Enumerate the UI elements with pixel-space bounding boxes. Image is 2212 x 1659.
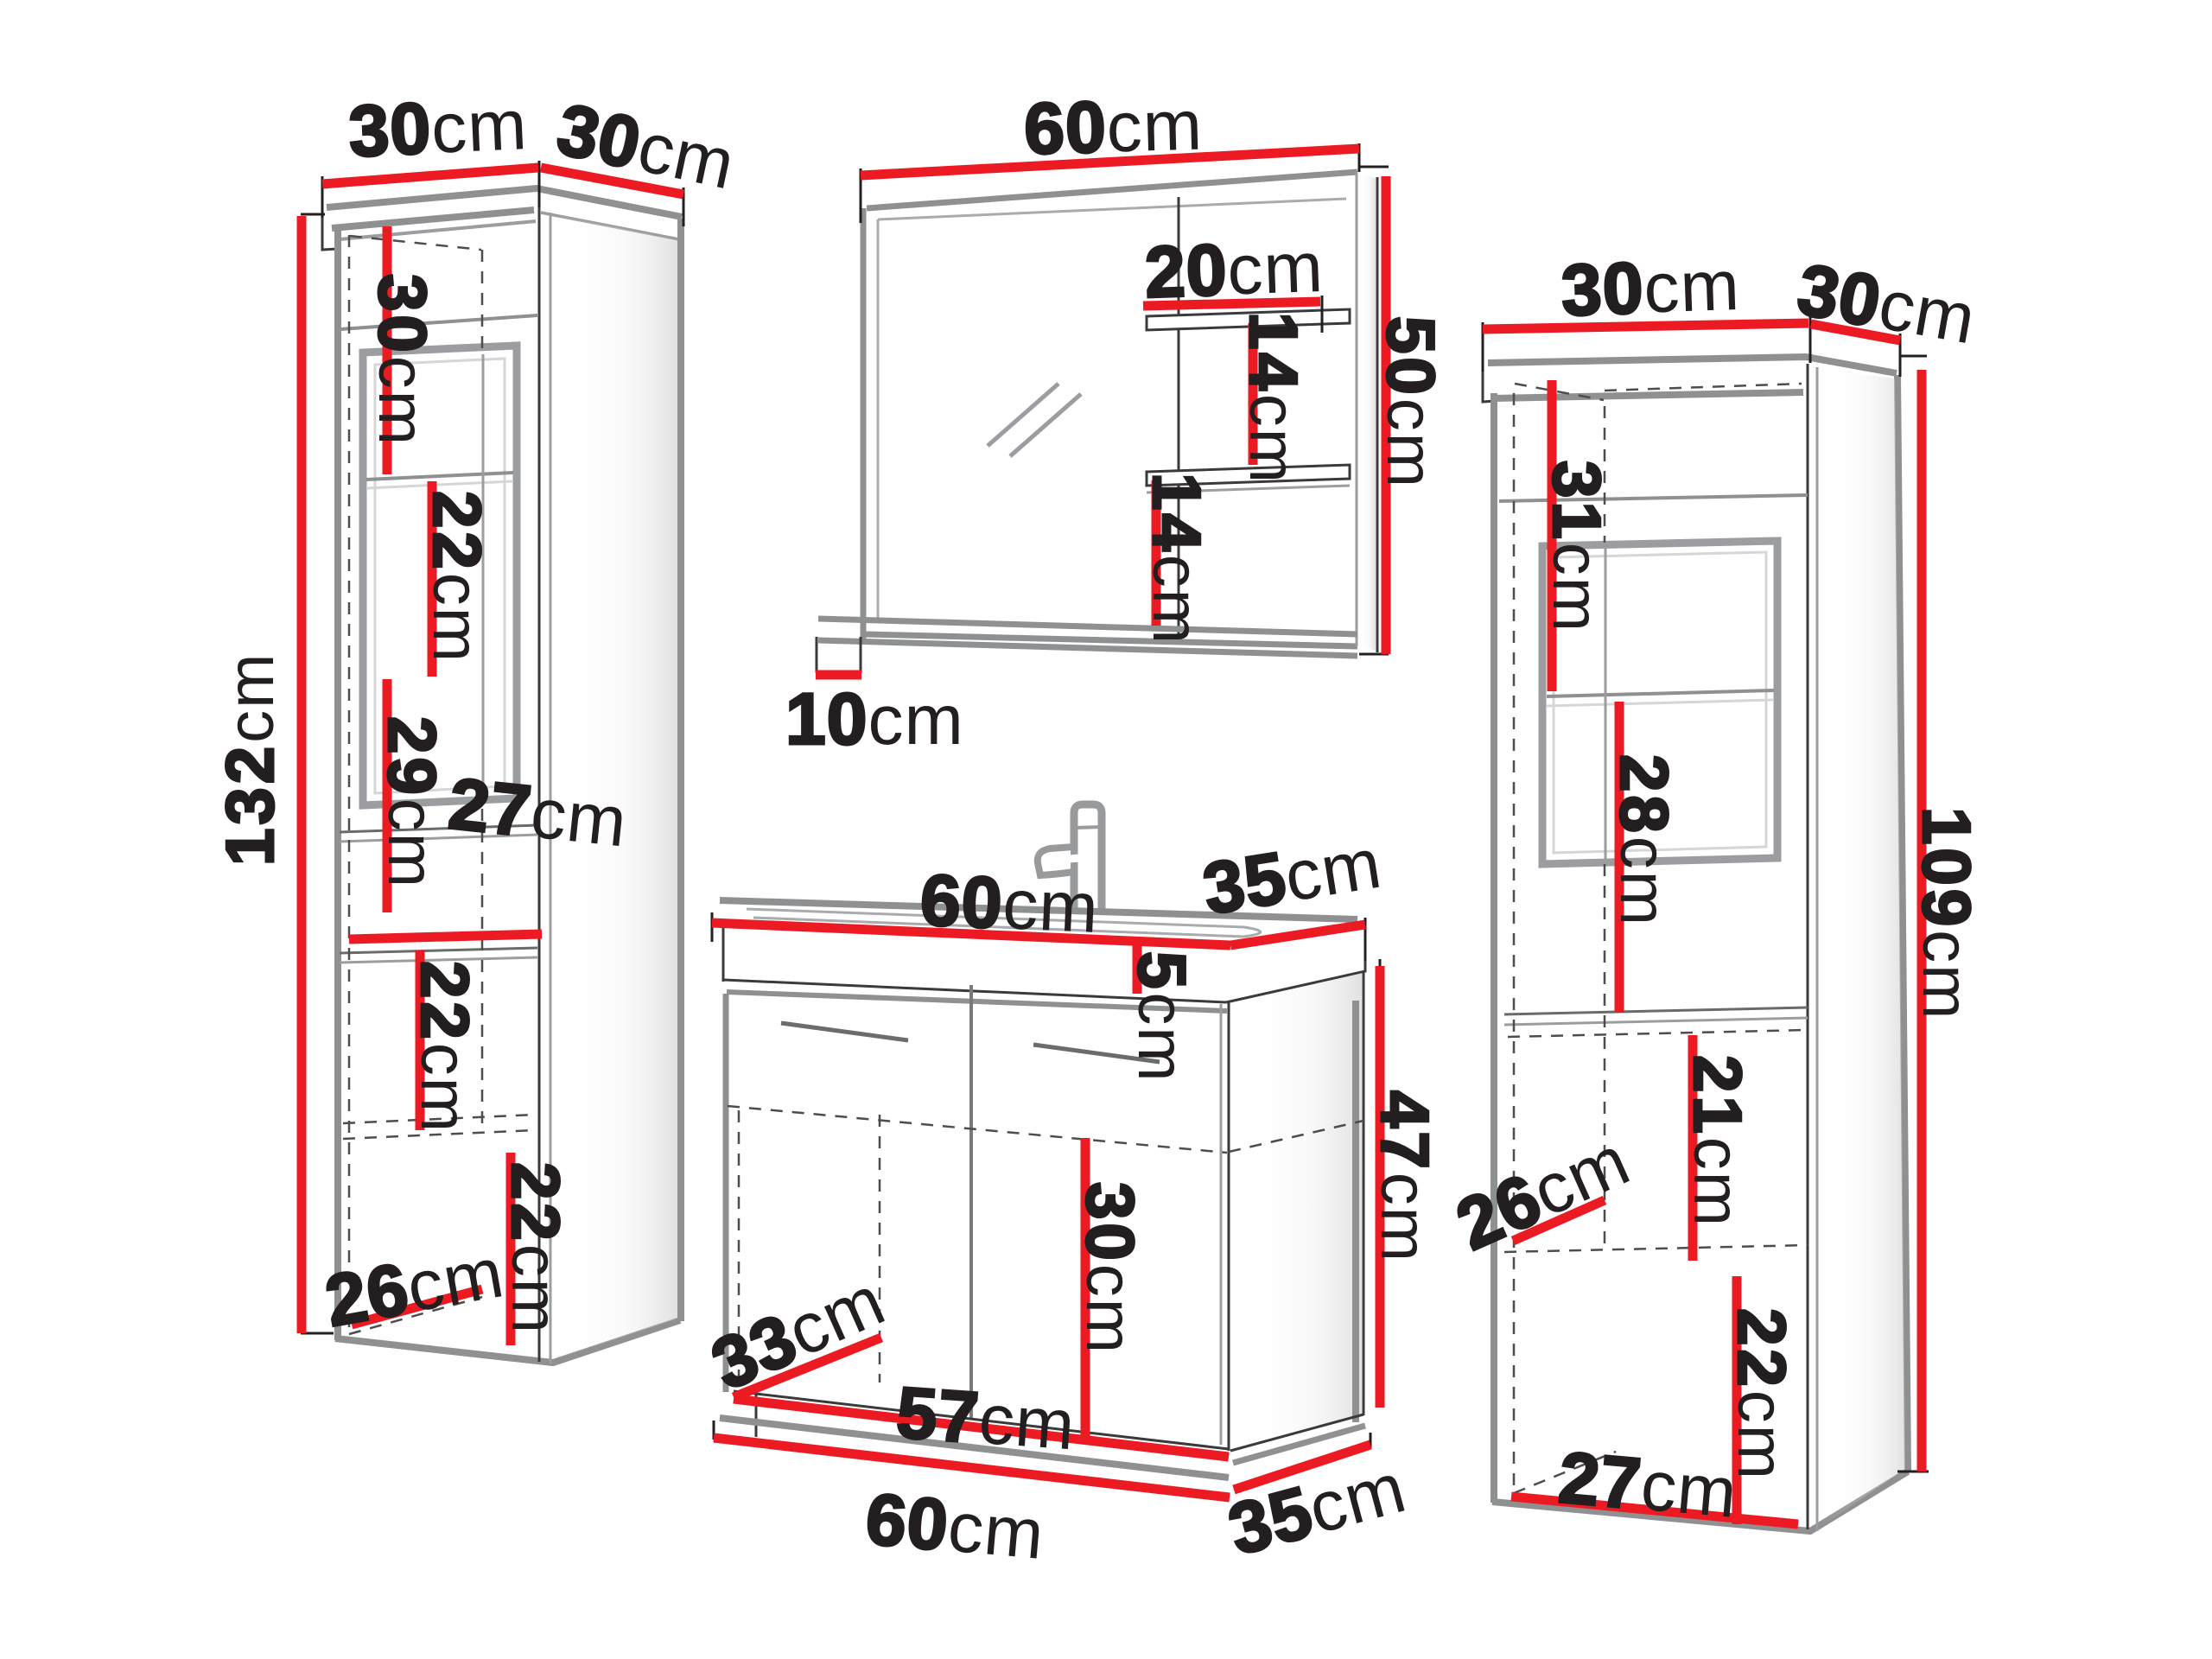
svg-text:5cm: 5cm — [1124, 951, 1200, 1084]
svg-text:50cm: 50cm — [1373, 316, 1449, 489]
svg-text:47cm: 47cm — [1367, 1090, 1443, 1263]
svg-text:29cm: 29cm — [374, 716, 450, 889]
svg-text:30cm: 30cm — [1072, 1182, 1148, 1355]
svg-text:30cm: 30cm — [347, 83, 530, 172]
svg-text:22cm: 22cm — [407, 961, 483, 1134]
svg-text:109cm: 109cm — [1909, 807, 1985, 1020]
svg-text:60cm: 60cm — [1023, 84, 1204, 169]
svg-text:30cm: 30cm — [365, 274, 441, 447]
svg-text:20cm: 20cm — [1143, 226, 1325, 313]
svg-text:132cm: 132cm — [212, 652, 288, 866]
svg-text:60cm: 60cm — [918, 859, 1101, 948]
svg-text:31cm: 31cm — [1539, 461, 1615, 633]
svg-text:22cm: 22cm — [419, 491, 495, 664]
svg-text:14cm: 14cm — [1236, 312, 1312, 485]
svg-text:14cm: 14cm — [1139, 473, 1215, 645]
svg-text:57cm: 57cm — [894, 1371, 1078, 1465]
svg-text:28cm: 28cm — [1606, 754, 1682, 927]
svg-text:10cm: 10cm — [785, 678, 964, 760]
svg-text:21cm: 21cm — [1680, 1055, 1756, 1228]
svg-text:30cm: 30cm — [1560, 244, 1741, 331]
